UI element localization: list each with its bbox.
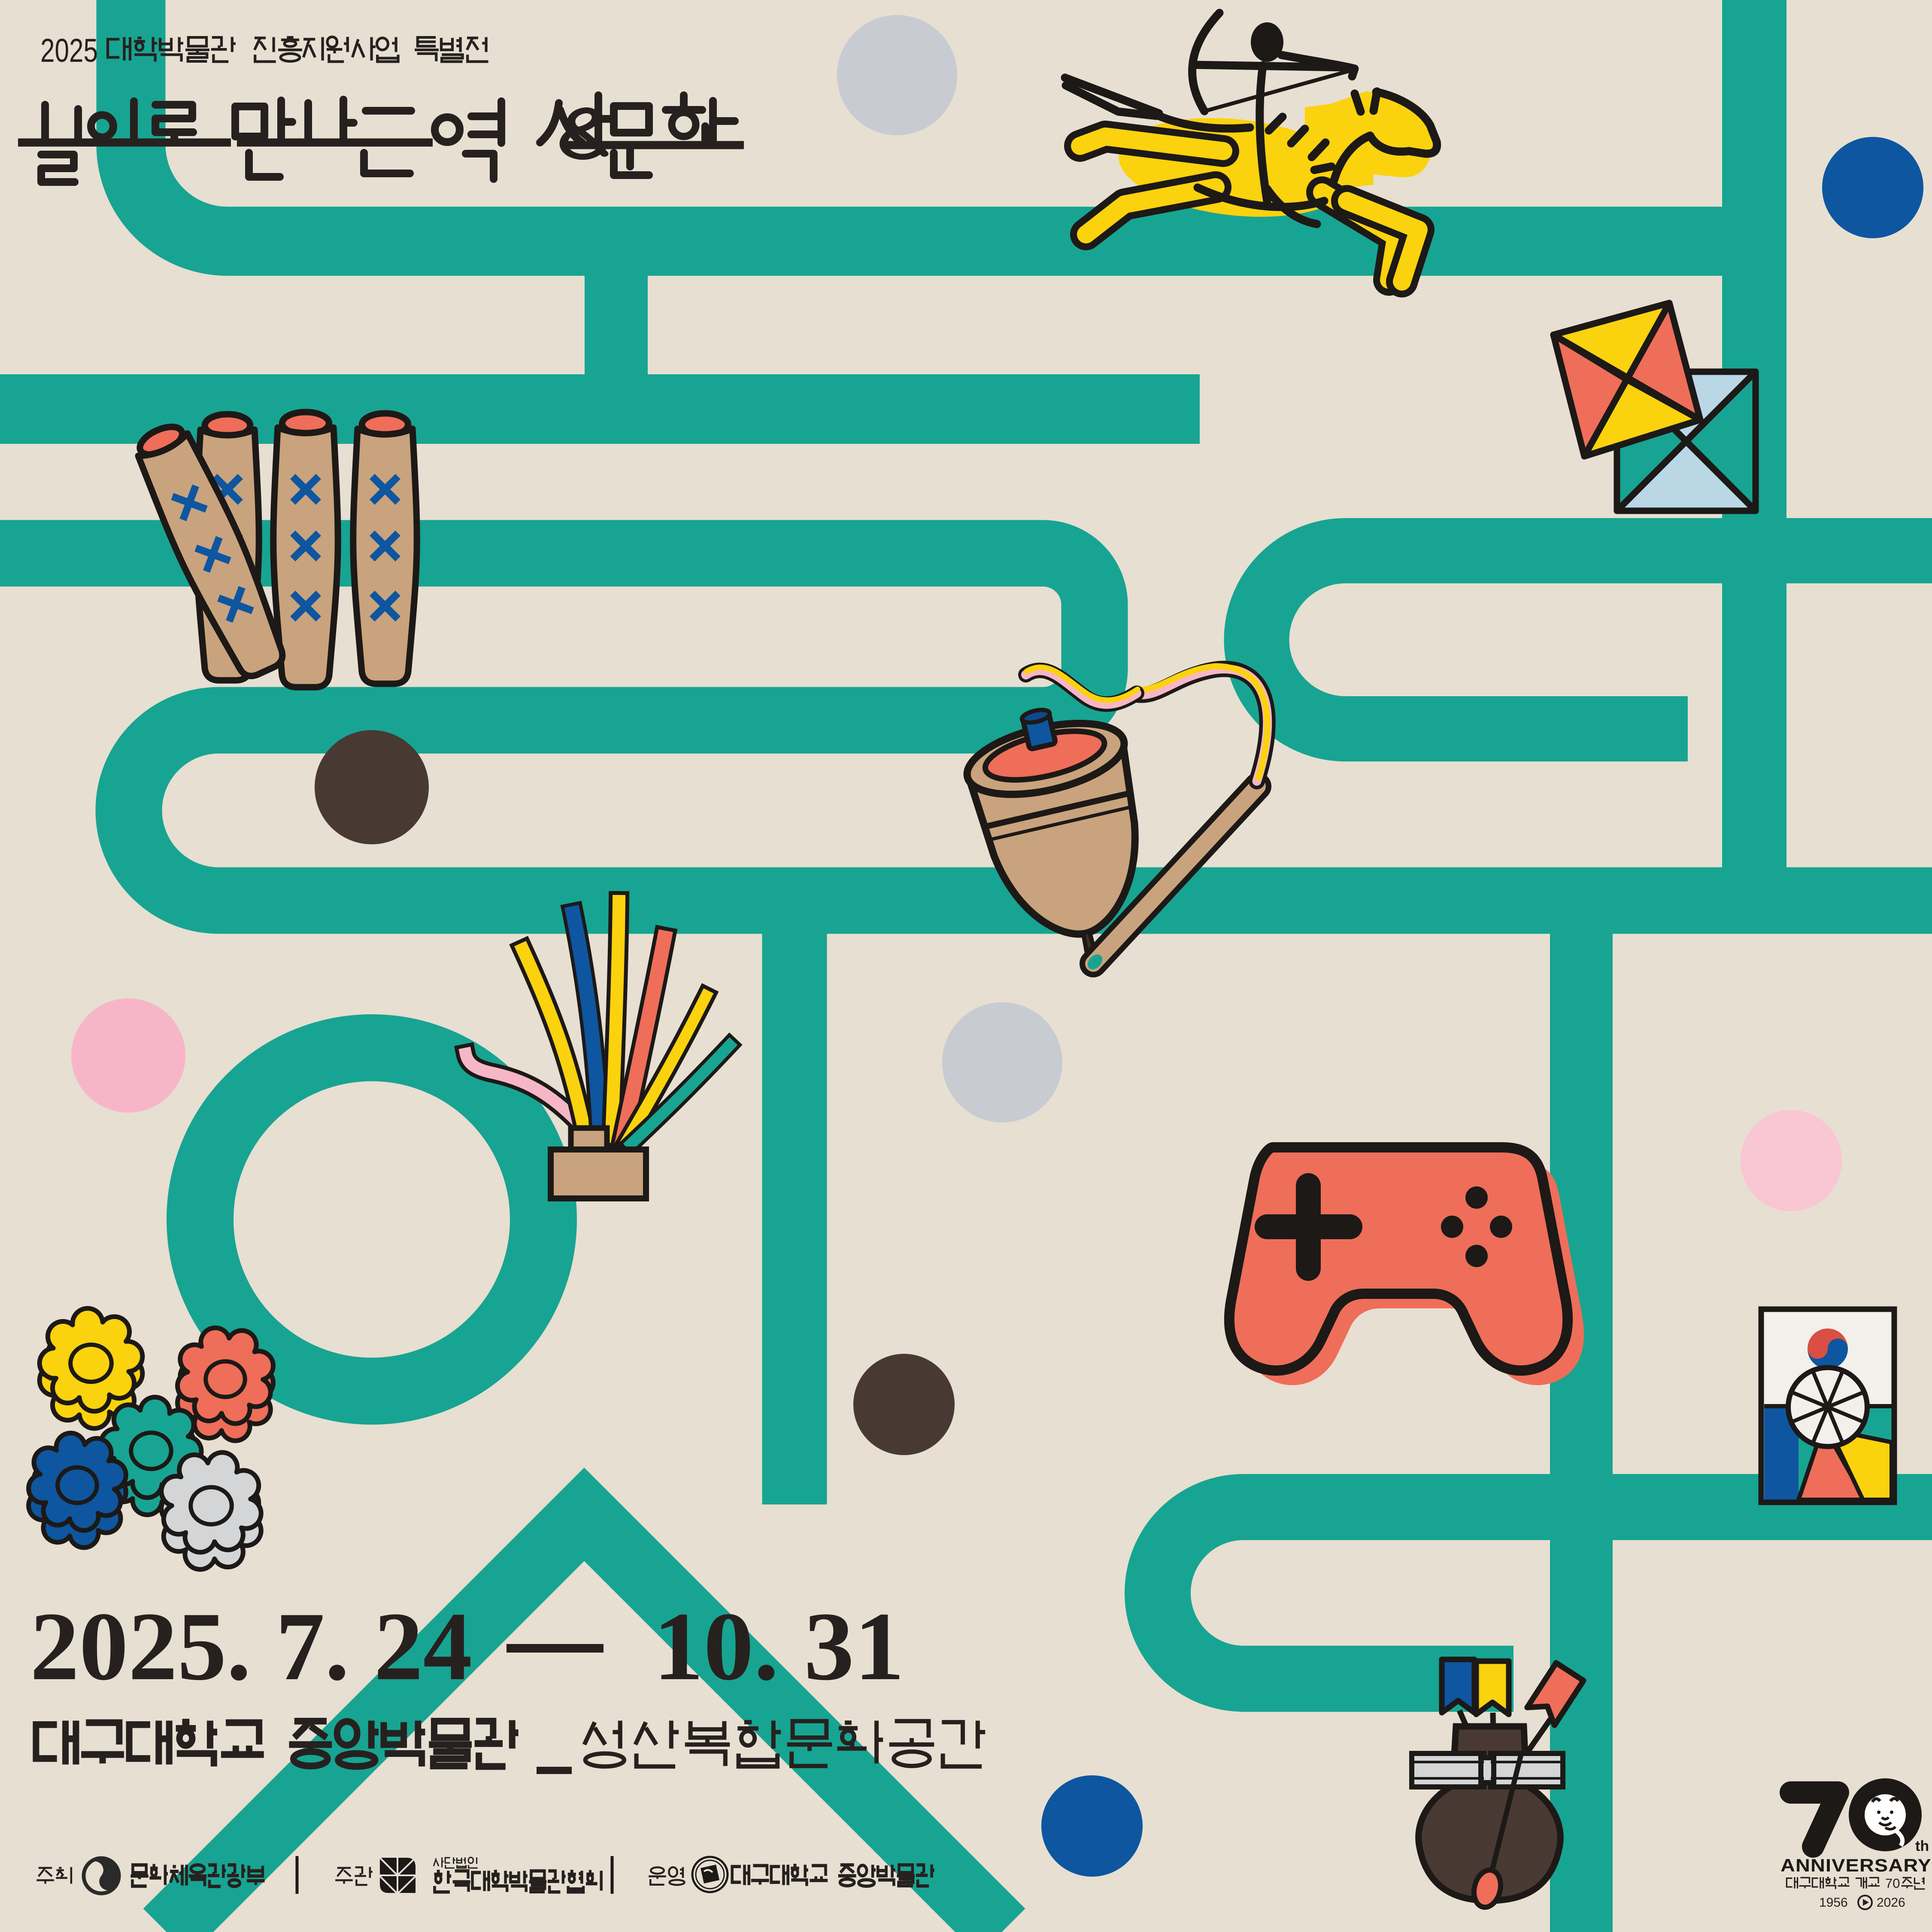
svg-text:th: th — [1915, 1838, 1929, 1854]
svg-text:10. 31: 10. 31 — [653, 1592, 904, 1701]
svg-text:ANNIVERSARY: ANNIVERSARY — [1780, 1855, 1932, 1875]
svg-text:2025: 2025 — [40, 32, 98, 69]
svg-text:2025. 7. 24: 2025. 7. 24 — [30, 1592, 472, 1701]
svg-text:70: 70 — [1885, 1876, 1900, 1891]
svg-text:1956: 1956 — [1819, 1896, 1848, 1910]
svg-text:2026: 2026 — [1877, 1896, 1905, 1910]
